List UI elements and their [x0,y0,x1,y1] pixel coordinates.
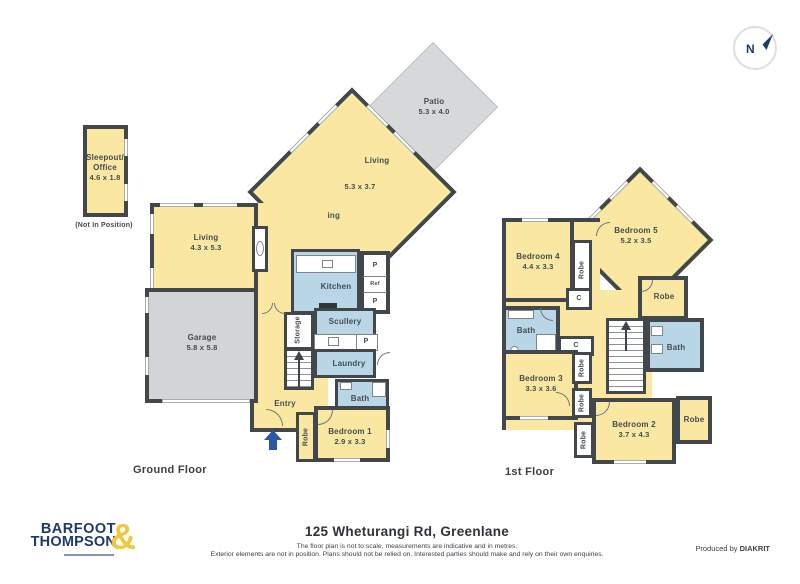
window [522,218,548,222]
window [124,139,128,156]
room-living2-label: Living [365,156,390,166]
room-bedroom2-label: Bedroom 2 3.7 x 4.3 [612,420,656,440]
window [651,181,669,199]
room-patio-label: Patio 5.3 x 4.0 [419,97,450,117]
stairs-up-arrow [621,321,631,351]
sink-icon [322,260,333,268]
robe-label: Robe [581,431,588,449]
north-indicator: N [733,26,777,70]
room-laundry-label: Laundry [333,359,366,369]
divider [363,292,387,293]
stairs-up-arrow [294,351,304,387]
fridge-label: Ref [370,279,379,289]
pantry-label: P [373,297,378,307]
disclaimer-line2: Exterior elements are not in position. P… [211,551,604,558]
room-entry-label: Entry [274,399,295,409]
window [150,268,154,288]
robe-label: Robe [303,428,310,446]
window [203,203,237,207]
produced-by-text: Produced by [695,544,739,553]
room-scullery-label: Scullery [329,317,362,327]
storage-label: Storage [295,316,302,343]
room-bedroom1-label: Bedroom 1 2.9 x 3.3 [328,427,372,447]
window [317,104,338,125]
room-living2-dims: 5.3 x 3.7 [345,182,376,192]
robe-label: Robe [579,261,586,279]
room-bath-left-label: Bath [517,326,536,336]
room-bedroom3-label: Bedroom 3 3.3 x 3.6 [519,374,563,394]
vanity-icon [651,344,663,354]
door-arc [377,352,390,365]
room-sleepout-label: Sleepout/ Office 4.6 x 1.8 [86,153,124,183]
room-bedroom5-label: Bedroom 5 5.2 x 3.5 [614,226,658,246]
robe-label: Robe [684,415,705,425]
window [289,133,310,154]
producer-name: DIAKRIT [740,544,770,553]
window [124,184,128,201]
window [675,205,693,223]
north-arrow-icon [757,34,773,50]
garage-door [162,399,250,403]
window [160,203,194,207]
robe-label: Robe [654,292,675,302]
ground-floor-label: Ground Floor [133,464,207,476]
window [609,181,629,201]
room-bath-ground-label: Bath [351,394,370,404]
fireplace-opening [256,241,264,256]
shower-icon [372,382,386,397]
window [145,297,149,313]
room-bedroom4-label: Bedroom 4 4.4 x 3.3 [516,252,560,272]
cupboard-label: C [576,294,581,304]
window [150,214,154,234]
window [520,416,548,420]
room-living-label: Living 4.3 x 5.3 [191,233,222,253]
window [145,357,149,375]
room-garage-label: Garage 5.8 x 5.8 [187,333,218,353]
north-label: N [746,42,755,56]
divider [356,335,357,350]
window [334,458,360,462]
room-kitchen-label: Kitchen [321,282,352,292]
floorplan-canvas: N Sleepout/ Office 4.6 x 1.8 (Not In Pos… [0,0,800,584]
window [614,460,646,464]
vanity-icon [651,326,663,336]
entry-arrow-icon [264,430,282,450]
robe-label: Robe [579,394,586,412]
window [386,430,390,448]
first-floor-label: 1st Floor [505,466,554,478]
disclaimer-line1: The floor plan is not to scale, measurem… [297,543,518,550]
pantry-label: P [373,261,378,271]
produced-by: Produced by DIAKRIT [695,544,770,553]
divider [363,276,387,277]
robe-label: Robe [579,359,586,377]
logo-tagline-line [64,554,114,556]
barfoot-thompson-logo: BARFOOT THOMPSON [28,523,116,549]
sink-icon [328,337,339,346]
logo-line2: THOMPSON [28,536,116,549]
logo-ampersand: & [110,519,136,555]
address-title: 125 Wheturangi Rd, Greenlane [305,524,509,539]
vanity-icon [340,382,352,390]
pantry-label: P [364,337,369,347]
room-bath-right-label: Bath [667,343,686,353]
sleepout-note: (Not In Position) [75,221,132,231]
vanity-icon [508,310,534,319]
